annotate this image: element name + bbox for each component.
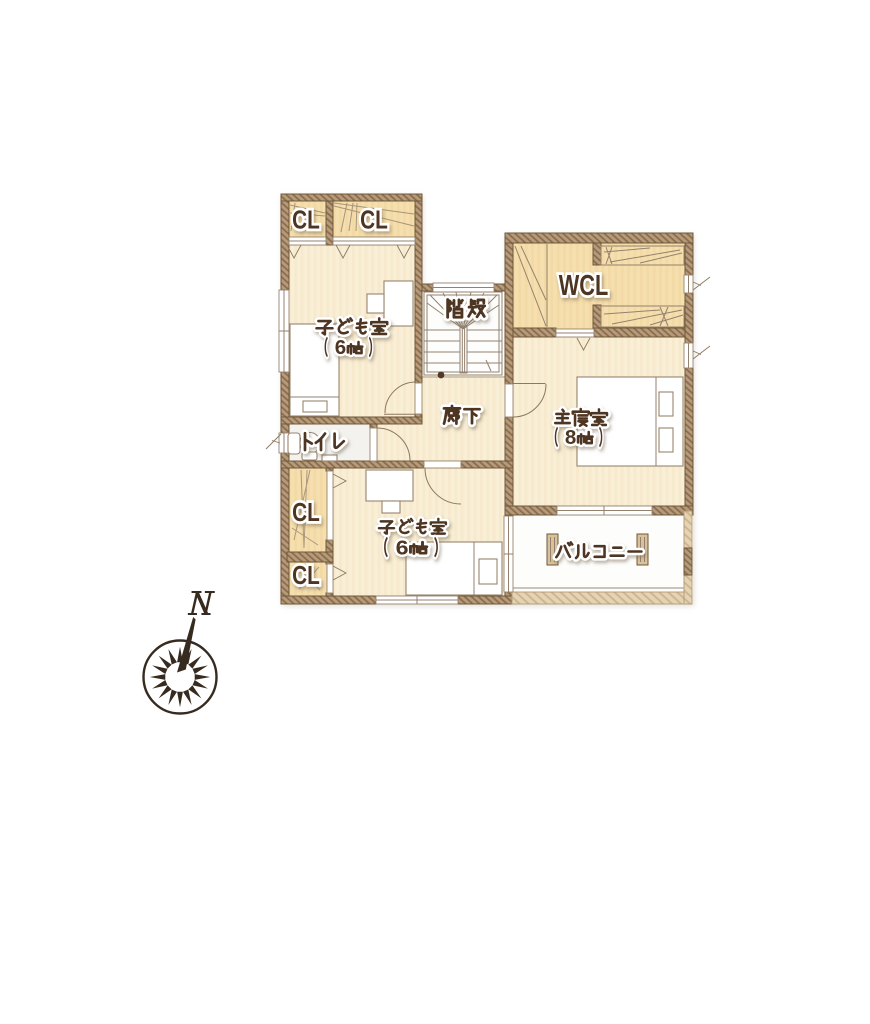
svg-text:CL: CL <box>292 561 320 590</box>
svg-text:CL: CL <box>360 205 388 234</box>
svg-text:CL: CL <box>292 498 320 527</box>
svg-text:CL: CL <box>292 205 320 234</box>
svg-text:WCL: WCL <box>559 270 609 302</box>
